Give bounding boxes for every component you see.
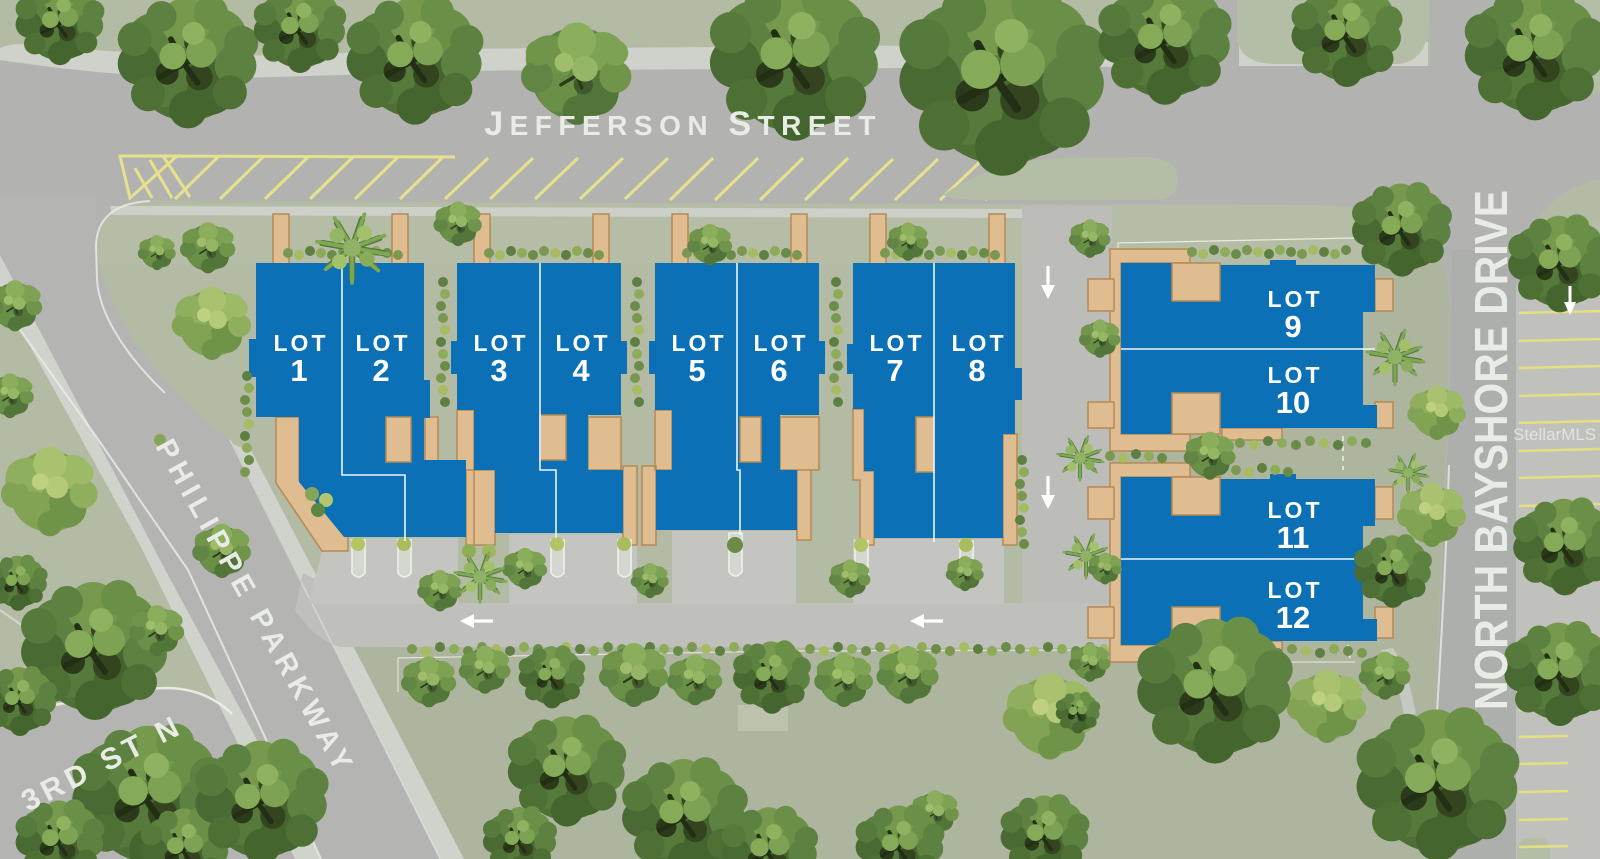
svg-text:8: 8 (968, 353, 985, 388)
svg-text:StellarMLS: StellarMLS (1513, 425, 1596, 444)
svg-text:6: 6 (770, 353, 787, 388)
svg-text:NORTH BAYSHORE DRIVE: NORTH BAYSHORE DRIVE (1465, 190, 1517, 710)
svg-text:3: 3 (490, 353, 507, 388)
svg-text:7: 7 (886, 353, 903, 388)
svg-text:11: 11 (1277, 520, 1310, 555)
svg-text:1: 1 (290, 353, 307, 388)
svg-text:5: 5 (688, 353, 705, 388)
svg-text:JEFFERSON STREET: JEFFERSON STREET (484, 105, 882, 143)
svg-text:12: 12 (1276, 600, 1310, 635)
svg-text:9: 9 (1284, 309, 1301, 344)
svg-text:4: 4 (572, 353, 590, 388)
svg-text:10: 10 (1276, 385, 1310, 420)
svg-text:2: 2 (372, 353, 389, 388)
